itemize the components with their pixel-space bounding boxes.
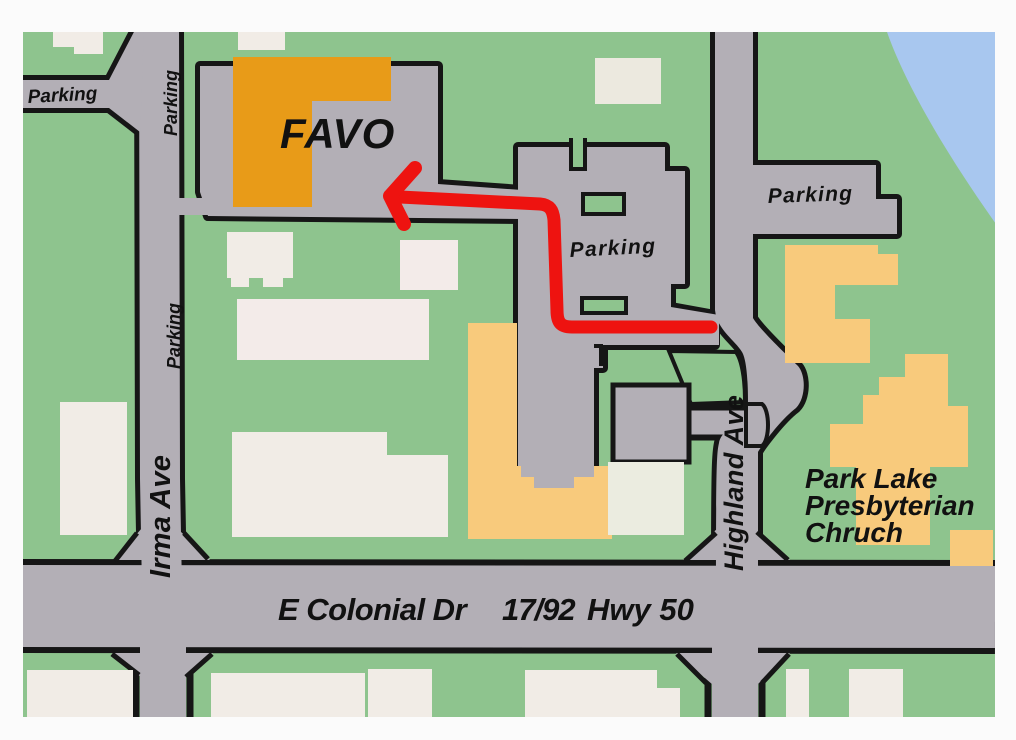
svg-text:Highland Ave: Highland Ave — [719, 395, 749, 571]
svg-text:Parking: Parking — [27, 83, 98, 108]
svg-text:Parking: Parking — [569, 234, 657, 262]
svg-text:FAVO: FAVO — [280, 110, 395, 157]
svg-text:17/92: 17/92 — [502, 592, 575, 627]
svg-text:Parking: Parking — [161, 70, 181, 136]
svg-text:Hwy 50: Hwy 50 — [587, 592, 694, 627]
svg-text:Chruch: Chruch — [805, 517, 903, 548]
svg-text:Parking: Parking — [767, 182, 853, 208]
svg-text:E Colonial Dr: E Colonial Dr — [278, 592, 469, 627]
svg-text:Parking: Parking — [164, 303, 184, 369]
svg-text:Irma Ave: Irma Ave — [145, 455, 177, 578]
